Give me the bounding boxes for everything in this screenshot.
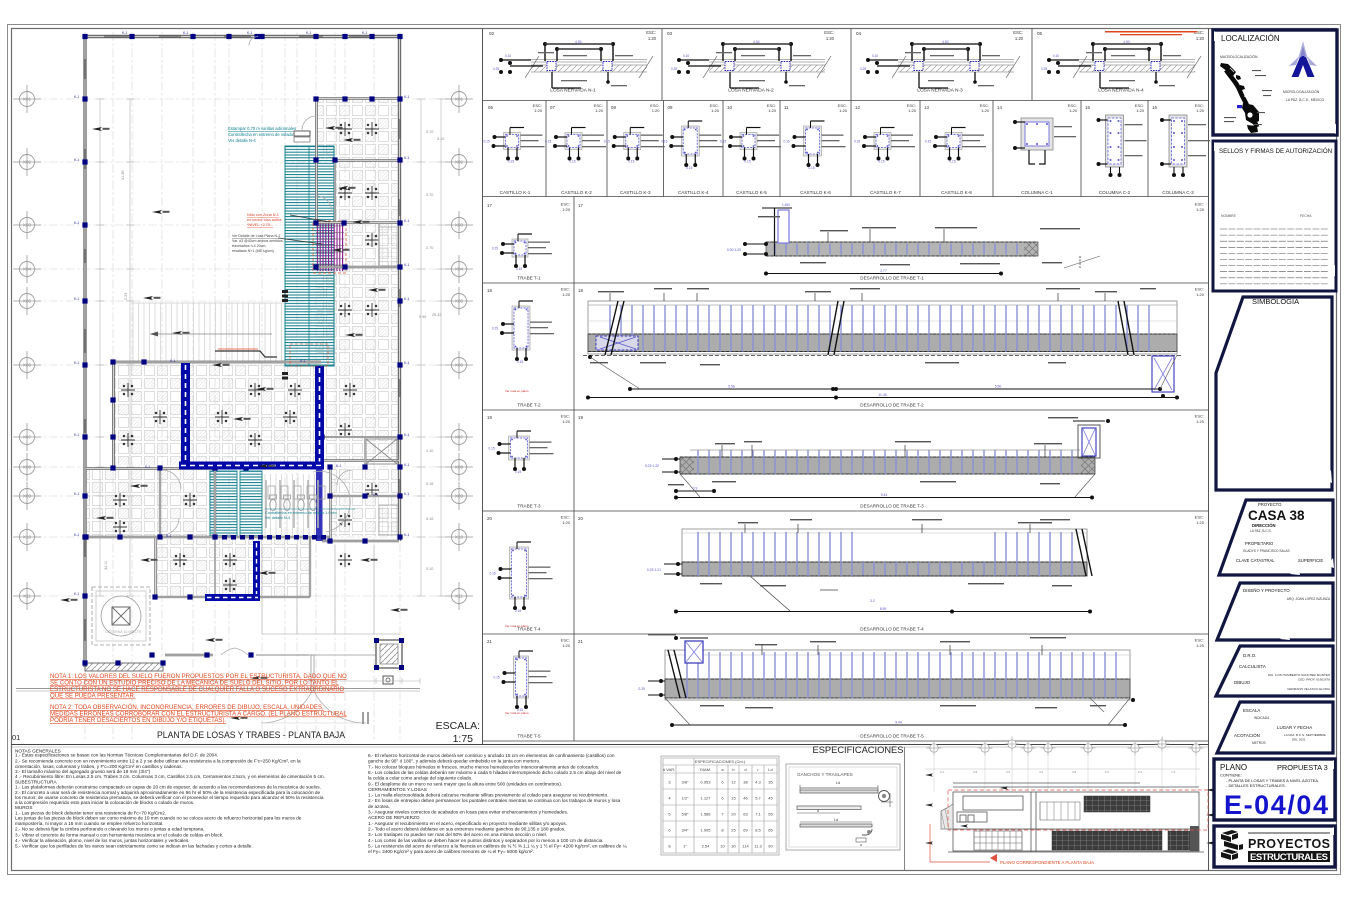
svg-text:GERMANN VELASCO ELVIRA: GERMANN VELASCO ELVIRA <box>1287 687 1331 691</box>
svg-text:0.96: 0.96 <box>419 315 426 319</box>
svg-text:20: 20 <box>487 516 492 521</box>
svg-text:12: 12 <box>855 105 860 110</box>
svg-text:CLAVE CATASTRAL: CLAVE CATASTRAL <box>1236 558 1275 563</box>
svg-text:1.- Asegurar el recubrimie: 1.- Asegurar el recubrimiento en el acer… <box>368 821 567 826</box>
svg-text:14: 14 <box>997 105 1002 110</box>
svg-text:K-1: K-1 <box>74 95 79 99</box>
svg-text:LA PAZ, B.C.S.: LA PAZ, B.C.S. <box>1250 529 1272 533</box>
svg-text:1.905: 1.905 <box>700 828 711 833</box>
svg-text:34.11: 34.11 <box>104 561 108 570</box>
svg-text:X06: X06 <box>23 363 32 368</box>
svg-text:X08: X08 <box>23 465 32 470</box>
svg-text:10: 10 <box>727 105 732 110</box>
svg-text:# VAR.: # VAR. <box>663 767 675 772</box>
svg-text:2.8: 2.8 <box>973 770 978 774</box>
svg-text:1.- Estas especificaciones se: 1.- Estas especificaciones se basan con … <box>15 753 218 758</box>
svg-text:LOSA NERVADA N-3: LOSA NERVADA N-3 <box>917 88 963 94</box>
svg-text:0.15: 0.15 <box>569 160 575 164</box>
svg-text:06: 06 <box>488 105 493 110</box>
svg-text:ESC:: ESC: <box>646 30 656 35</box>
svg-text:en sector losa arriba: en sector losa arriba <box>247 218 282 222</box>
svg-text:K-1: K-1 <box>166 534 171 538</box>
svg-text:K-1: K-1 <box>74 433 79 437</box>
svg-text:DESARROLLO DE TRABE T-4: DESARROLLO DE TRABE T-4 <box>860 627 924 632</box>
svg-text:90: 90 <box>768 844 773 849</box>
svg-text:0.15: 0.15 <box>628 160 634 164</box>
svg-text:0.10: 0.10 <box>1053 54 1059 58</box>
svg-text:ESC:: ESC: <box>1013 30 1023 35</box>
svg-text:DIRECCIÓN: DIRECCIÓN <box>1252 523 1276 528</box>
svg-text:0.15: 0.15 <box>744 160 750 164</box>
svg-text:TRABE T-2: TRABE T-2 <box>517 403 541 408</box>
svg-text:9.- El desplome de un muro: 9.- El desplome de un muro no será mayor… <box>368 781 562 786</box>
svg-text:1:20: 1:20 <box>562 520 571 525</box>
svg-text:DIBUJO: DIBUJO <box>1234 680 1251 685</box>
svg-text:TRABE T-5: TRABE T-5 <box>517 734 541 739</box>
svg-text:1:20: 1:20 <box>648 36 657 41</box>
svg-text:1/2": 1/2" <box>682 796 690 801</box>
svg-text:ESC:: ESC: <box>561 414 570 419</box>
svg-text:1:20: 1:20 <box>562 643 571 648</box>
svg-text:K-1: K-1 <box>226 534 231 538</box>
svg-text:K-1: K-1 <box>336 464 341 468</box>
svg-text:Var. #3 @40cm ambos sentidos,: Var. #3 @40cm ambos sentidos, <box>232 239 284 243</box>
svg-text:0.9: 0.9 <box>693 487 698 491</box>
svg-text:3.- Vibrar el concreto de form: 3.- Vibrar el concreto de forma manual o… <box>15 832 223 837</box>
svg-text:3.- Asegurar niveles corre: 3.- Asegurar niveles correctos de acabad… <box>368 810 568 815</box>
svg-text:2.54: 2.54 <box>702 844 711 849</box>
svg-text:DESARROLLO DE TRABE T-3: DESARROLLO DE TRABE T-3 <box>860 504 924 509</box>
svg-text:COLUMNA C-3: COLUMNA C-3 <box>1162 190 1194 195</box>
svg-text:3.- Los traslapes no puede: 3.- Los traslapes no pueden ser mas del … <box>368 832 547 837</box>
svg-text:ESCALA:: ESCALA: <box>436 720 480 732</box>
svg-text:ARQ. JOAN LOPEZ INZUNZA: ARQ. JOAN LOPEZ INZUNZA <box>1287 597 1331 601</box>
svg-text:0.15: 0.15 <box>545 140 551 144</box>
svg-text:K-1: K-1 <box>74 361 79 365</box>
svg-text:21: 21 <box>487 639 492 644</box>
svg-text:Ver nota en plano: Ver nota en plano <box>505 711 529 715</box>
svg-text:MICROLOCALIZACIÓN: MICROLOCALIZACIÓN <box>1283 89 1320 94</box>
svg-text:X05: X05 <box>455 299 464 304</box>
svg-text:X02: X02 <box>23 160 32 165</box>
svg-text:4.50: 4.50 <box>575 40 582 44</box>
svg-text:0.25: 0.25 <box>860 67 866 71</box>
svg-text:METROS: METROS <box>1252 741 1266 745</box>
svg-text:1:20: 1:20 <box>1196 36 1205 41</box>
svg-text:11: 11 <box>784 105 789 110</box>
svg-text:LOSA NERVADA N-1: LOSA NERVADA N-1 <box>550 88 596 94</box>
svg-text:ESC:: ESC: <box>1195 414 1204 419</box>
svg-text:ESC:: ESC: <box>561 515 570 520</box>
svg-text:2.- En losas de entrepiso: 2.- En losas de entrepiso deben permanec… <box>368 798 621 803</box>
svg-text:1:20: 1:20 <box>562 419 571 424</box>
svg-text:1:20: 1:20 <box>981 108 990 113</box>
svg-text:0.10: 0.10 <box>872 54 878 58</box>
svg-text:resaltado N+1 (ME kg/cm): resaltado N+1 (ME kg/cm) <box>232 249 274 253</box>
svg-text:FECHA: FECHA <box>1300 214 1312 218</box>
svg-text:Ver detalle N-4: Ver detalle N-4 <box>228 138 256 143</box>
svg-text:1:20: 1:20 <box>1015 36 1024 41</box>
svg-text:2.- Se recomienda concreto con: 2.- Se recomienda concreto con un reveni… <box>15 758 301 763</box>
svg-text:20: 20 <box>578 516 583 521</box>
svg-text:05: 05 <box>1037 31 1043 36</box>
svg-text:Ld: Ld <box>834 818 838 822</box>
svg-text:LUGAR Y FECHA: LUGAR Y FECHA <box>1277 725 1312 730</box>
svg-text:0.15: 0.15 <box>686 166 692 170</box>
svg-text:16: 16 <box>1152 105 1157 110</box>
svg-text:08: 08 <box>611 105 616 110</box>
svg-text:04: 04 <box>856 31 862 36</box>
svg-text:3/8": 3/8" <box>682 780 690 785</box>
svg-text:7.- No colocar bloques húm: 7.- No colocar bloques húmedos ni fresco… <box>368 764 599 769</box>
svg-text:K-1: K-1 <box>74 297 79 301</box>
svg-text:X07: X07 <box>455 435 464 440</box>
svg-text:1:20: 1:20 <box>711 108 720 113</box>
svg-text:ESC:: ESC: <box>1195 638 1204 643</box>
svg-text:PROPUESTA 3: PROPUESTA 3 <box>1277 763 1328 772</box>
svg-text:K-1: K-1 <box>74 592 79 596</box>
svg-text:NOMBRE: NOMBRE <box>1221 214 1237 218</box>
svg-text:03: 03 <box>667 31 673 36</box>
svg-text:3.10: 3.10 <box>426 567 433 571</box>
svg-text:1.127: 1.127 <box>700 796 711 801</box>
svg-text:3.2: 3.2 <box>870 599 875 603</box>
svg-text:travesaños h.4 20cm,: travesaños h.4 20cm, <box>232 244 266 248</box>
svg-text:la celda a colar como anclaje: la celda a colar como anclaje del siguie… <box>368 776 473 781</box>
svg-text:0.15: 0.15 <box>925 140 931 144</box>
svg-text:0.10: 0.10 <box>505 54 511 58</box>
svg-text:19: 19 <box>487 415 492 420</box>
svg-text:3.70: 3.70 <box>426 130 433 134</box>
svg-text:0.15: 0.15 <box>508 160 514 164</box>
svg-text:MUROS: MUROS <box>15 805 32 810</box>
svg-text:K-1: K-1 <box>74 221 79 225</box>
svg-text:X11: X11 <box>23 594 31 599</box>
svg-text:2.23: 2.23 <box>124 293 128 300</box>
svg-text:SELLOS Y FIRMAS DE AUTORIZACIÓ: SELLOS Y FIRMAS DE AUTORIZACIÓN <box>1219 148 1332 155</box>
svg-text:CASTILLO K-4: CASTILLO K-4 <box>678 190 709 195</box>
svg-text:0.15: 0.15 <box>720 140 726 144</box>
svg-text:PROPIETARIO: PROPIETARIO <box>1245 541 1274 546</box>
svg-text:LA PAZ, B.C.S., MÉXICO: LA PAZ, B.C.S., MÉXICO <box>1286 97 1325 102</box>
svg-text:K-1: K-1 <box>74 492 79 496</box>
svg-text:X11: X11 <box>455 594 463 599</box>
svg-text:1:20: 1:20 <box>1196 292 1205 297</box>
svg-text:Contraflecha en extremo de vol: Contraflecha en extremo de volado 1.0 cm <box>265 511 337 515</box>
svg-text:4.9: 4.9 <box>1072 770 1077 774</box>
svg-text:CED. PROF. 61902678: CED. PROF. 61902678 <box>1298 678 1330 682</box>
svg-text:K-1: K-1 <box>300 359 305 363</box>
svg-text:4 .- Recubrimiento libre: En L: 4 .- Recubrimiento libre: En Losas 2.5 c… <box>15 774 325 779</box>
svg-text:1:20: 1:20 <box>826 36 835 41</box>
svg-text:K-1: K-1 <box>404 95 409 99</box>
svg-text:CALCULISTA: CALCULISTA <box>1239 664 1266 669</box>
svg-text:ACERO DE REFUERZO: ACERO DE REFUERZO <box>368 815 420 820</box>
svg-text:ESC:: ESC: <box>824 30 834 35</box>
svg-text:K-1: K-1 <box>362 31 367 35</box>
svg-text:CASTILLO K-8: CASTILLO K-8 <box>941 190 972 195</box>
svg-text:DESARROLLO DE TRABE T-1: DESARROLLO DE TRABE T-1 <box>860 276 924 281</box>
svg-text:D.R.O.: D.R.O. <box>1243 653 1256 658</box>
svg-text:5.- Verificar que los perfilad: 5.- Verificar que los perfilados de los … <box>15 844 253 849</box>
svg-text:K-1: K-1 <box>404 463 409 467</box>
svg-text:X06: X06 <box>455 363 464 368</box>
svg-text:1:20: 1:20 <box>1196 520 1205 525</box>
svg-text:6.3: 6.3 <box>1138 770 1143 774</box>
svg-text:1": 1" <box>683 844 687 849</box>
svg-text:LOCALIZACIÓN: LOCALIZACIÓN <box>1221 34 1280 43</box>
svg-text:TRABE T-1: TRABE T-1 <box>517 276 541 281</box>
svg-text:0.15: 0.15 <box>516 267 522 271</box>
svg-text:Ver nota en plano: Ver nota en plano <box>505 389 529 393</box>
svg-text:K-1: K-1 <box>404 263 409 267</box>
svg-text:35: 35 <box>768 780 773 785</box>
svg-text:Estampar 0.70 m varillas adici: Estampar 0.70 m varillas adicionales <box>228 126 296 131</box>
svg-text:1:20: 1:20 <box>562 207 571 212</box>
svg-text:0.15: 0.15 <box>492 247 498 251</box>
svg-text:PLANTA DE LOSAS Y TRABES - P: PLANTA DE LOSAS Y TRABES - PLANTA BAJA <box>157 730 346 741</box>
svg-text:3.70: 3.70 <box>426 193 433 197</box>
svg-text:PLANO: PLANO <box>1220 763 1247 772</box>
svg-text:2.77: 2.77 <box>880 269 887 273</box>
svg-text:K-1: K-1 <box>306 31 311 35</box>
svg-text:19: 19 <box>578 415 583 420</box>
svg-text:ESCALA: ESCALA <box>1243 708 1260 713</box>
svg-text:- DETALLES ESTRUCTURALES.: - DETALLES ESTRUCTURALES. <box>1226 783 1286 788</box>
svg-text:PROYECTOS: PROYECTOS <box>1248 837 1330 851</box>
svg-text:PODRÍA TENER DESACIERTOS EN DI: PODRÍA TENER DESACIERTOS EN DIBUJO Y/O E… <box>50 717 226 724</box>
svg-text:12: 12 <box>731 780 736 785</box>
svg-text:4.50: 4.50 <box>1123 40 1130 44</box>
svg-text:K-1: K-1 <box>404 361 409 365</box>
svg-text:0.15: 0.15 <box>878 160 884 164</box>
svg-text:ESC:: ESC: <box>1195 515 1204 520</box>
svg-text:K-1: K-1 <box>145 465 150 469</box>
svg-text:2.70: 2.70 <box>426 246 433 250</box>
svg-text:9.44: 9.44 <box>895 721 902 725</box>
svg-text:COLUMNA C-2: COLUMNA C-2 <box>1099 190 1131 195</box>
svg-text:1:20: 1:20 <box>1196 108 1205 113</box>
svg-text:INDICADA: INDICADA <box>1254 716 1270 720</box>
svg-text:CONTIENE:: CONTIENE: <box>1220 773 1242 778</box>
svg-text:15: 15 <box>1085 105 1090 110</box>
svg-text:1:20: 1:20 <box>768 108 777 113</box>
svg-text:0.15: 0.15 <box>517 360 523 364</box>
svg-text:ESPECIFICACIONES: ESPECIFICACIONES <box>813 745 904 755</box>
svg-text:0.25 1:21: 0.25 1:21 <box>647 568 661 572</box>
svg-text:10: 10 <box>720 844 725 849</box>
svg-text:CERRAMIENTOS Y LOSAS: CERRAMIENTOS Y LOSAS <box>368 787 427 792</box>
svg-text:CISTERNA 10,000 LTS: CISTERNA 10,000 LTS <box>105 630 142 634</box>
svg-text:6.- El refuerzo horizontal: 6.- El refuerzo horizontal de muros debe… <box>368 753 615 758</box>
svg-text:X08: X08 <box>455 465 464 470</box>
svg-text:DISEÑO Y PROYECTO: DISEÑO Y PROYECTO <box>1243 588 1290 593</box>
svg-text:0.15: 0.15 <box>490 572 496 576</box>
svg-text:1:20: 1:20 <box>1069 108 1078 113</box>
svg-text:CASTILLO K-5: CASTILLO K-5 <box>736 190 767 195</box>
svg-text:0.15: 0.15 <box>489 447 495 451</box>
svg-text:18: 18 <box>578 288 583 293</box>
svg-text:21: 21 <box>578 639 583 644</box>
svg-text:1:20: 1:20 <box>534 108 543 113</box>
svg-text:K-1: K-1 <box>404 433 409 437</box>
svg-text:07: 07 <box>550 105 555 110</box>
svg-text:4.2: 4.2 <box>1039 770 1044 774</box>
svg-text:Ver detalle N-4: Ver detalle N-4 <box>265 516 290 520</box>
svg-text:X10: X10 <box>455 535 464 540</box>
svg-text:K-1: K-1 <box>170 359 175 363</box>
svg-text:0.15: 0.15 <box>494 676 500 680</box>
svg-text:3.16: 3.16 <box>426 517 433 521</box>
svg-text:K-1: K-1 <box>74 158 79 162</box>
svg-text:Las juntas de las piezas de bl: Las juntas de las piezas de block deben … <box>15 816 302 821</box>
svg-text:5.56: 5.56 <box>728 385 735 389</box>
svg-text:ESC:: ESC: <box>561 202 570 207</box>
svg-text:0.25: 0.25 <box>493 67 499 71</box>
svg-text:65: 65 <box>768 828 773 833</box>
svg-text:01: 01 <box>12 733 20 742</box>
svg-text:1:20: 1:20 <box>652 108 661 113</box>
svg-text:1:20: 1:20 <box>562 292 571 297</box>
svg-text:5.6: 5.6 <box>1105 770 1110 774</box>
svg-text:09: 09 <box>668 105 673 110</box>
svg-text:17: 17 <box>487 203 492 208</box>
svg-text:DESARROLLO DE TRABE T-2: DESARROLLO DE TRABE T-2 <box>860 403 924 408</box>
svg-text:55: 55 <box>768 812 773 817</box>
svg-text:LA PAZ, B.C.S. SEPTIEMBRE: LA PAZ, B.C.S. SEPTIEMBRE <box>1284 733 1326 737</box>
svg-text:CASTILLO K-1: CASTILLO K-1 <box>500 190 531 195</box>
svg-text:Nido con Zona N-1: Nido con Zona N-1 <box>247 213 279 217</box>
svg-text:0.15: 0.15 <box>492 327 498 331</box>
svg-text:4.50: 4.50 <box>942 40 949 44</box>
svg-text:X04: X04 <box>23 267 32 272</box>
svg-text:8.- Los colados de las cel: 8.- Los colados de las celdas deberán se… <box>368 770 622 775</box>
svg-text:Ver Detalle de Losa Plana N-1: Ver Detalle de Losa Plana N-1 <box>232 234 280 238</box>
svg-text:45: 45 <box>768 796 773 801</box>
svg-text:X09: X09 <box>23 494 32 499</box>
svg-text:1:20: 1:20 <box>908 108 917 113</box>
svg-text:K-1: K-1 <box>183 31 188 35</box>
svg-text:0.15: 0.15 <box>808 166 814 170</box>
svg-text:0.25: 0.25 <box>1041 67 1047 71</box>
svg-text:11.3: 11.3 <box>754 844 762 849</box>
svg-text:a la compresión requerido esto: a la compresión requerido esto para inic… <box>15 800 194 805</box>
svg-text:4.- Los cortes de las vari: 4.- Los cortes de las varillas se deben … <box>368 838 604 843</box>
svg-text:0.15: 0.15 <box>784 140 790 144</box>
svg-text:ESC:: ESC: <box>1195 202 1204 207</box>
svg-text:1:75: 1:75 <box>453 733 474 745</box>
svg-text:d: d <box>744 767 746 772</box>
svg-text:17: 17 <box>578 203 583 208</box>
svg-text:0.25 1:20: 0.25 1:20 <box>645 464 659 468</box>
svg-text:5.50: 5.50 <box>995 385 1002 389</box>
svg-text:4.50: 4.50 <box>753 40 760 44</box>
svg-text:1:20: 1:20 <box>1196 419 1205 424</box>
svg-text:11.45: 11.45 <box>878 393 886 397</box>
svg-text:CASTILLO K-7: CASTILLO K-7 <box>870 190 901 195</box>
svg-text:PROYECTO: PROYECTO <box>1258 502 1282 507</box>
svg-text:de azotea.: de azotea. <box>368 804 390 809</box>
svg-text:69: 69 <box>743 828 748 833</box>
svg-text:TRABE T-3: TRABE T-3 <box>517 504 541 509</box>
svg-text:8.5: 8.5 <box>755 828 761 833</box>
svg-text:9.43: 9.43 <box>881 493 888 497</box>
svg-text:QUE SE PUEDA PRESENTAR.: QUE SE PUEDA PRESENTAR. <box>50 693 136 700</box>
svg-text:1.- La malla electrosoldad: 1.- La malla electrosoldada deberá calza… <box>368 793 609 798</box>
svg-text:DEL 2021: DEL 2021 <box>1292 738 1306 742</box>
svg-text:E-04/04: E-04/04 <box>1224 790 1328 820</box>
svg-text:ESC:: ESC: <box>1195 287 1204 292</box>
svg-text:el Fy= 2400 Kg/cm² y para acer: el Fy= 2400 Kg/cm² y para acero de calib… <box>368 849 534 854</box>
svg-text:20: 20 <box>731 812 736 817</box>
svg-text:X01: X01 <box>455 97 464 102</box>
svg-text:X03: X03 <box>23 223 32 228</box>
svg-text:0.10: 0.10 <box>683 54 689 58</box>
svg-text:SUPERFICIE: SUPERFICIE <box>1298 558 1323 563</box>
svg-text:X09: X09 <box>455 494 464 499</box>
svg-text:63: 63 <box>743 812 748 817</box>
svg-text:2.- No se deberá fijar la cimb: 2.- No se deberá fijar la cimbra perfora… <box>15 826 204 831</box>
svg-text:0.953: 0.953 <box>700 780 711 785</box>
svg-text:LOSA NERVADA N-4: LOSA NERVADA N-4 <box>1098 88 1144 94</box>
svg-text:2.1: 2.1 <box>940 770 945 774</box>
svg-text:1:20: 1:20 <box>839 108 848 113</box>
svg-text:0.25: 0.25 <box>638 687 645 691</box>
svg-text:ESC:: ESC: <box>561 287 570 292</box>
svg-text:1.10: 1.10 <box>426 449 433 453</box>
svg-text:K-1: K-1 <box>404 219 409 223</box>
svg-text:4.3: 4.3 <box>755 780 761 785</box>
svg-text:GLADYS Y FRANCISCO SALAS: GLADYS Y FRANCISCO SALAS <box>1243 549 1290 553</box>
svg-text:K-1: K-1 <box>74 533 79 537</box>
svg-text:K-1: K-1 <box>122 31 127 35</box>
svg-text:ESPECIFICACIONES (Cm.): ESPECIFICACIONES (Cm.) <box>695 759 746 764</box>
svg-text:15: 15 <box>731 796 736 801</box>
svg-text:0.15: 0.15 <box>515 609 521 613</box>
svg-text:1:20: 1:20 <box>595 108 604 113</box>
svg-text:1:20: 1:20 <box>1136 108 1145 113</box>
svg-text:*NIVEL +2.70...: *NIVEL +2.70... <box>247 223 273 227</box>
svg-text:0.15: 0.15 <box>604 140 610 144</box>
svg-text:MACROLOCALIZACIÓN: MACROLOCALIZACIÓN <box>1220 54 1258 59</box>
svg-text:Ver nota en plano: Ver nota en plano <box>505 624 529 628</box>
svg-text:0.90 1:20: 0.90 1:20 <box>727 248 741 252</box>
svg-text:3.10: 3.10 <box>437 137 444 141</box>
svg-text:13: 13 <box>924 105 929 110</box>
svg-text:K-1: K-1 <box>225 465 230 469</box>
svg-text:K-1: K-1 <box>404 297 409 301</box>
svg-text:CASTILLO K-6: CASTILLO K-6 <box>800 190 831 195</box>
svg-text:0.25: 0.25 <box>671 67 677 71</box>
svg-text:a: a <box>860 843 862 847</box>
svg-text:COLUMNA C-1: COLUMNA C-1 <box>1021 190 1053 195</box>
svg-text:LOSA NERVADA N-2: LOSA NERVADA N-2 <box>728 88 774 94</box>
svg-text:3/4": 3/4" <box>682 828 690 833</box>
svg-text:3.5: 3.5 <box>1006 770 1011 774</box>
svg-text:5/8": 5/8" <box>682 812 690 817</box>
svg-text:gancho de 90° ó 180°, y además: gancho de 90° ó 180°, y además deberá qu… <box>368 759 540 764</box>
svg-text:114: 114 <box>742 844 749 849</box>
svg-text:5.- La resistencia del ace: 5.- La resistencia del acero de refuerzo… <box>368 842 627 848</box>
svg-text:ACOTACIÓN: ACOTACIÓN <box>1234 733 1260 738</box>
svg-text:ESTRUCTURALES: ESTRUCTURALES <box>1250 852 1328 863</box>
svg-text:1:20: 1:20 <box>1196 643 1205 648</box>
svg-text:DESARROLLO DE TRABE T-5: DESARROLLO DE TRABE T-5 <box>860 734 924 739</box>
svg-text:02: 02 <box>489 31 495 36</box>
svg-text:38: 38 <box>743 780 748 785</box>
svg-text:ING. LUIS HUMBERTO SANCHEZ MON: ING. LUIS HUMBERTO SANCHEZ MONTES <box>1268 673 1330 677</box>
svg-text:25: 25 <box>731 828 736 833</box>
